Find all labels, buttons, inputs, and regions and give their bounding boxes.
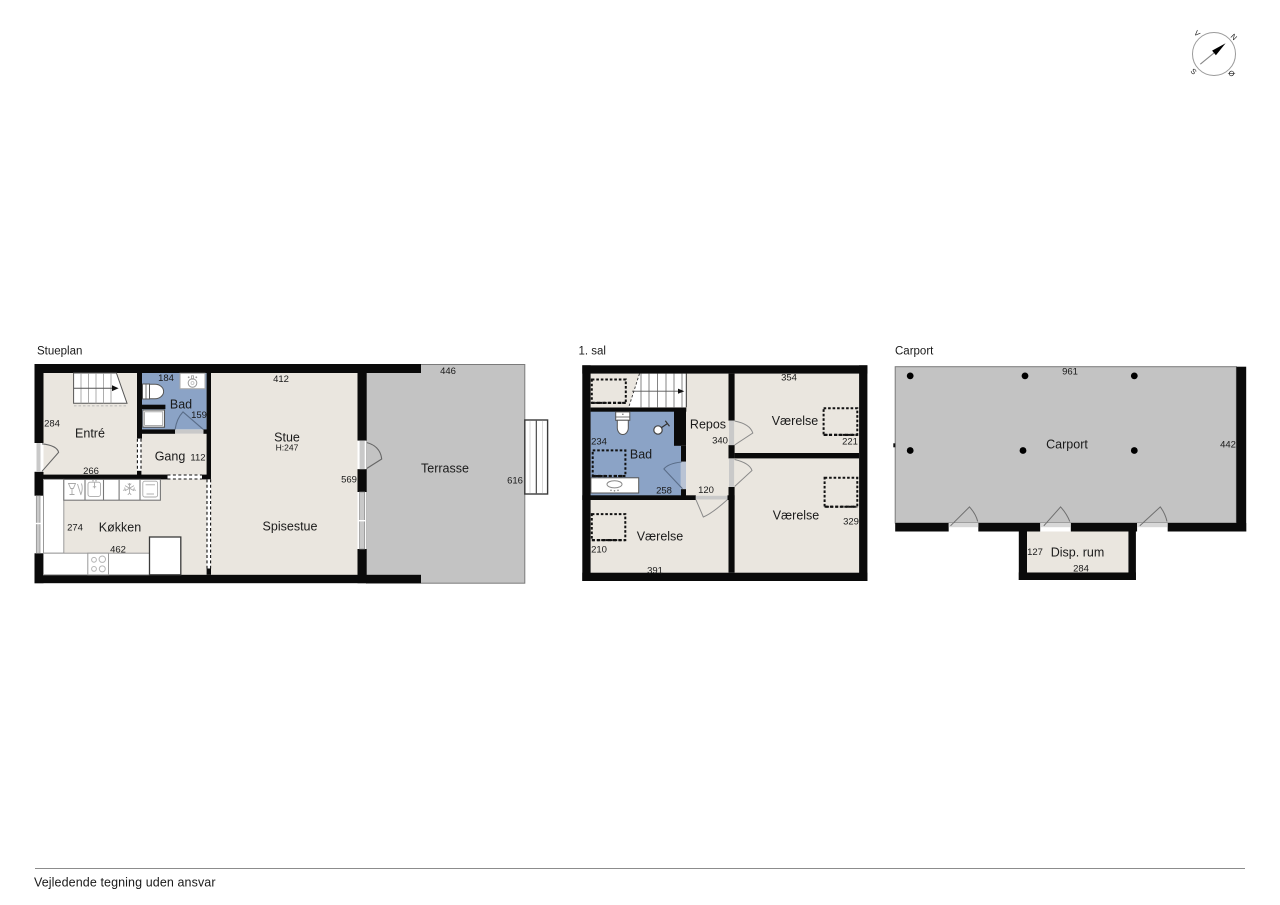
svg-text:112: 112 [190, 452, 205, 463]
svg-text:961: 961 [1062, 366, 1078, 377]
svg-text:234: 234 [591, 436, 607, 447]
svg-text:266: 266 [83, 466, 99, 477]
svg-text:184: 184 [158, 373, 174, 384]
svg-text:258: 258 [656, 485, 672, 496]
svg-text:Entré: Entré [75, 426, 105, 440]
svg-text:Køkken: Køkken [99, 520, 141, 534]
svg-text:210: 210 [591, 544, 607, 555]
svg-text:412: 412 [273, 374, 289, 385]
svg-text:462: 462 [110, 544, 126, 555]
svg-text:Stueplan: Stueplan [37, 346, 82, 358]
svg-text:Værelse: Værelse [773, 508, 820, 522]
svg-text:127: 127 [1027, 547, 1043, 558]
svg-text:Carport: Carport [895, 346, 934, 358]
svg-text:Gang: Gang [155, 449, 186, 463]
svg-text:Terrasse: Terrasse [421, 461, 469, 475]
svg-text:329: 329 [843, 516, 859, 527]
svg-text:354: 354 [781, 372, 797, 383]
svg-text:391: 391 [647, 565, 663, 576]
svg-text:1. sal: 1. sal [579, 346, 607, 358]
svg-text:H:247: H:247 [276, 443, 299, 453]
svg-text:569: 569 [341, 474, 357, 485]
svg-text:Vejledende tegning uden ansvar: Vejledende tegning uden ansvar [34, 876, 216, 890]
svg-text:Værelse: Værelse [772, 414, 819, 428]
svg-text:120: 120 [698, 485, 714, 496]
svg-text:Spisestue: Spisestue [263, 519, 318, 533]
svg-text:340: 340 [712, 435, 728, 446]
svg-text:Repos: Repos [690, 417, 726, 431]
svg-text:Carport: Carport [1046, 437, 1088, 451]
svg-text:616: 616 [507, 476, 523, 487]
svg-text:221: 221 [842, 436, 858, 447]
svg-text:442: 442 [1220, 439, 1236, 450]
svg-text:284: 284 [44, 418, 60, 429]
svg-text:Disp. rum: Disp. rum [1051, 545, 1104, 559]
svg-text:Bad: Bad [630, 447, 652, 461]
svg-text:284: 284 [1073, 563, 1089, 574]
svg-text:274: 274 [67, 522, 83, 533]
svg-text:Bad: Bad [170, 397, 192, 411]
svg-text:Værelse: Værelse [637, 529, 684, 543]
svg-text:446: 446 [440, 366, 456, 377]
svg-text:159: 159 [191, 410, 207, 421]
